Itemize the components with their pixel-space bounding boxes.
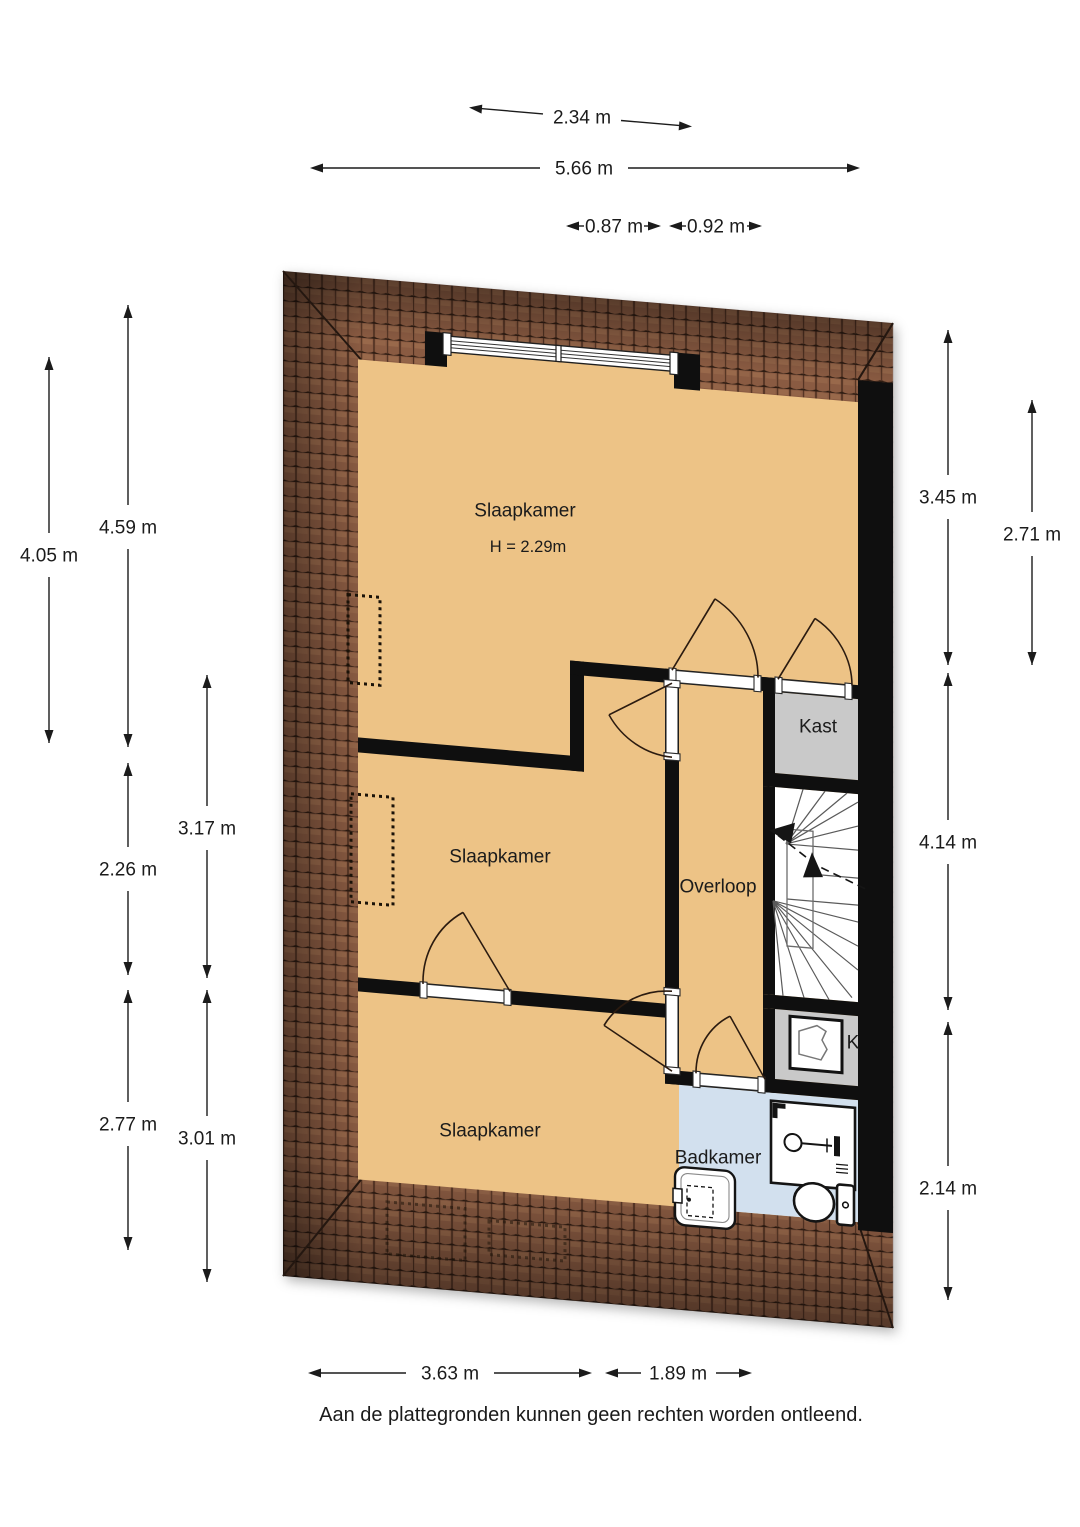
floorplan-page: Slaapkamer H = 2.29m Slaapkamer Slaapkam… — [0, 0, 1080, 1527]
footer-disclaimer: Aan de plattegronden kunnen geen rechten… — [319, 1404, 863, 1426]
dim-left-277: 2.77 m — [99, 990, 157, 1250]
dim-label-345: 3.45 m — [919, 488, 977, 509]
room-label-badkamer: Badkamer — [675, 1148, 762, 1169]
boiler-icon — [790, 1016, 842, 1072]
dim-left-317: 3.17 m — [178, 675, 236, 978]
dim-right-414: 4.14 m — [919, 673, 977, 1010]
dim-top-087: 0.87 m — [566, 217, 661, 238]
floor-plan-svg: Slaapkamer H = 2.29m Slaapkamer Slaapkam… — [0, 0, 1080, 1527]
dim-bottom-363: 3.63 m — [308, 1364, 592, 1385]
dim-label-214: 2.14 m — [919, 1179, 977, 1200]
dim-label-459: 4.59 m — [99, 518, 157, 539]
dim-label-277: 2.77 m — [99, 1115, 157, 1136]
room-height-label: H = 2.29m — [490, 538, 567, 556]
dim-top-234: 2.34 m — [469, 104, 693, 132]
dim-top-092: 0.92 m — [669, 217, 762, 238]
room-label-slaapkamer-2: Slaapkamer — [449, 847, 551, 868]
dim-right-214: 2.14 m — [919, 1022, 977, 1300]
dim-label-414: 4.14 m — [919, 833, 977, 854]
dim-left-301: 3.01 m — [178, 990, 236, 1282]
dim-left-459: 4.59 m — [99, 305, 157, 747]
dim-label-226: 2.26 m — [99, 860, 157, 881]
dim-label-271: 2.71 m — [1003, 525, 1061, 546]
dim-right-345: 3.45 m — [919, 330, 977, 665]
dim-label-566: 5.66 m — [555, 159, 613, 180]
dim-label-317: 3.17 m — [178, 819, 236, 840]
dim-label-189: 1.89 m — [649, 1364, 707, 1385]
dim-left-405: 4.05 m — [20, 357, 78, 743]
room-label-slaapkamer-1: Slaapkamer — [474, 501, 576, 522]
dim-label-234: 2.34 m — [553, 108, 611, 129]
dim-label-363: 3.63 m — [421, 1364, 479, 1385]
plan-body — [283, 271, 893, 1328]
shower-icon — [771, 1101, 855, 1190]
dim-label-087: 0.87 m — [585, 217, 643, 238]
room-label-k: K — [847, 1033, 860, 1054]
dim-left-226: 2.26 m — [99, 763, 157, 975]
room-label-overloop: Overloop — [679, 877, 756, 898]
dim-label-405: 4.05 m — [20, 546, 78, 567]
dim-label-301: 3.01 m — [178, 1129, 236, 1150]
dim-label-092: 0.92 m — [687, 217, 745, 238]
dim-bottom-189: 1.89 m — [605, 1364, 752, 1385]
dim-right-271: 2.71 m — [1003, 400, 1061, 665]
washbasin-icon — [673, 1166, 735, 1229]
dim-top-566: 5.66 m — [310, 159, 860, 180]
room-label-slaapkamer-3: Slaapkamer — [439, 1121, 541, 1142]
room-label-kast: Kast — [799, 717, 838, 738]
